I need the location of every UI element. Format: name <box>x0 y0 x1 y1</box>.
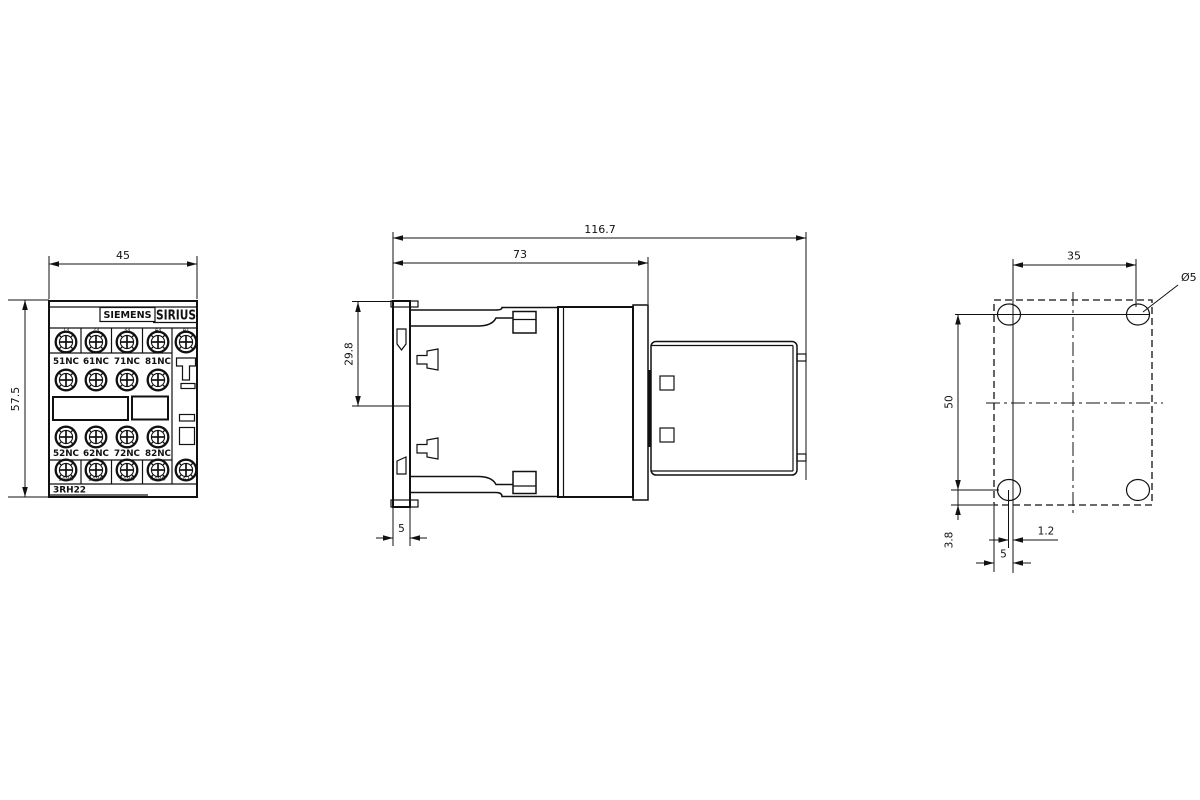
nc-label: 82NC <box>145 449 171 459</box>
arrowhead <box>49 261 59 267</box>
dimension-drawing: 45 57.5 SIEMENS SIRIUS <box>0 0 1200 800</box>
screw-terminal <box>117 370 138 391</box>
terminal-label: 44NO <box>150 477 166 483</box>
screw-terminal <box>56 332 77 353</box>
din-offset-label: 29.8 <box>344 342 356 365</box>
connector-tab <box>797 354 806 361</box>
arrowhead <box>984 560 994 566</box>
connector-tab <box>797 454 806 461</box>
screw-terminal <box>56 427 77 448</box>
nc-label: 72NC <box>114 449 140 459</box>
offset-h-label: 1.2 <box>1038 526 1055 538</box>
connector-block <box>650 342 807 476</box>
din-rail-clips <box>417 349 438 459</box>
nc-label: 52NC <box>53 449 79 459</box>
arrowhead <box>1013 537 1023 543</box>
front-width-label: 45 <box>116 249 130 262</box>
arrowhead <box>393 260 403 266</box>
mounting-hole <box>1127 480 1150 501</box>
terminal-label: 13 <box>63 328 70 334</box>
label-window <box>132 397 168 420</box>
offset-v-dimension: 3.8 <box>944 490 994 548</box>
terminal-label: 43 <box>155 328 162 334</box>
arrowhead <box>1126 262 1136 268</box>
plate-width-dimension: 5 <box>376 508 427 546</box>
dimension-drawing-canvas: 45 57.5 SIEMENS SIRIUS <box>0 0 1200 800</box>
arrowhead <box>638 260 648 266</box>
nc-label: 71NC <box>114 357 140 367</box>
body-depth-dimension: 73 <box>393 248 648 304</box>
screw-terminal <box>148 427 169 448</box>
arrowhead <box>355 302 361 312</box>
arrowhead <box>383 535 393 541</box>
offset-h-dimension: 1.2 <box>989 490 1058 548</box>
front-width-dimension: 45 <box>49 249 197 299</box>
terminal-label: 24NO <box>88 477 104 483</box>
terminal-label: 34NO <box>119 477 135 483</box>
drill-plan-view: 35 Ø5 50 3.8 1.2 <box>944 250 1197 574</box>
nc-label: 81NC <box>145 357 171 367</box>
offset-v-label: 3.8 <box>944 532 956 549</box>
arrowhead <box>22 300 28 310</box>
arrowhead <box>1013 262 1023 268</box>
screw-terminal <box>148 370 169 391</box>
front-view: 45 57.5 SIEMENS SIRIUS <box>8 249 197 497</box>
screw-terminal <box>176 332 197 353</box>
terminal-label: A2 <box>182 477 189 483</box>
hole-diameter-callout: Ø5 <box>1143 271 1197 312</box>
brand-text: SIEMENS <box>104 310 152 321</box>
hole-pitch-v-label: 50 <box>944 395 956 408</box>
terminal-label: 33 <box>124 328 131 334</box>
nc-label: 51NC <box>53 357 79 367</box>
din-offset-dimension: 29.8 <box>344 302 411 407</box>
connector-slot <box>660 428 674 442</box>
series-text: SIRIUS <box>156 308 196 324</box>
arrowhead <box>410 535 420 541</box>
arrowhead <box>355 396 361 406</box>
connector-slot <box>660 376 674 390</box>
terminal-label: 14NO <box>58 477 74 483</box>
body-end-cap <box>633 305 648 500</box>
plate-width-label: 5 <box>398 523 405 535</box>
arrowhead <box>955 480 961 490</box>
arrowhead <box>955 505 961 515</box>
arrowhead <box>22 487 28 497</box>
overall-depth-dimension: 116.7 <box>393 223 806 480</box>
arrowhead <box>999 537 1009 543</box>
screw-terminal <box>86 370 107 391</box>
arrowhead <box>955 315 961 325</box>
arrowhead <box>393 235 403 241</box>
model-text: 3RH22 <box>53 486 86 496</box>
screw-terminal <box>117 427 138 448</box>
hole-pitch-h-label: 35 <box>1067 250 1081 263</box>
arrowhead <box>1013 560 1023 566</box>
nc-label: 61NC <box>83 357 109 367</box>
hole-diameter-label: Ø5 <box>1181 271 1197 284</box>
body-depth-label: 73 <box>513 248 527 261</box>
screw-terminal <box>56 370 77 391</box>
hole-pitch-h-dimension: 35 <box>1013 250 1136 308</box>
terminal-block-side <box>513 312 536 334</box>
terminal-label: A1 <box>183 328 190 334</box>
nc-label: 62NC <box>83 449 109 459</box>
front-height-label: 57.5 <box>9 387 22 412</box>
overall-depth-label: 116.7 <box>584 223 616 236</box>
screw-terminal <box>86 427 107 448</box>
screw-terminal <box>148 332 169 353</box>
label-window <box>53 397 128 420</box>
terminal-block-side <box>513 472 536 494</box>
screw-terminal <box>86 332 107 353</box>
arrowhead <box>187 261 197 267</box>
terminal-label: 23 <box>93 328 100 334</box>
arrowhead <box>796 235 806 241</box>
housing-profile <box>410 308 558 497</box>
relay-body-side <box>558 305 648 500</box>
hole-pitch-v-dimension: 50 <box>944 315 1000 491</box>
edge-offset-label: 5 <box>1000 549 1007 561</box>
front-height-dimension: 57.5 <box>8 300 49 497</box>
side-view: 116.7 73 29.8 <box>344 223 807 546</box>
accessory-latch <box>177 358 196 445</box>
branding-band: SIEMENS SIRIUS <box>100 308 197 324</box>
screw-terminal <box>117 332 138 353</box>
